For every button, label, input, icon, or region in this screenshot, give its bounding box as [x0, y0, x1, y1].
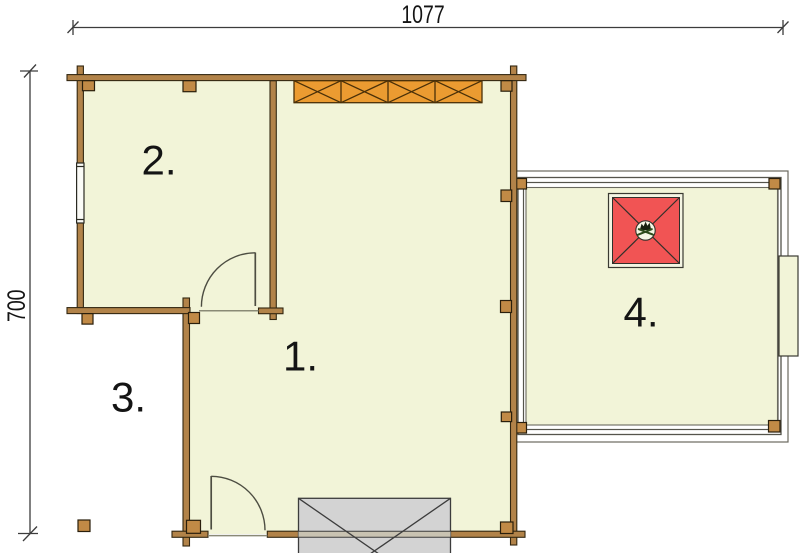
svg-text:4.: 4.	[624, 289, 659, 336]
svg-text:2.: 2.	[142, 137, 177, 184]
svg-text:1.: 1.	[283, 333, 318, 380]
svg-text:700: 700	[3, 289, 31, 322]
svg-text:3.: 3.	[111, 374, 146, 421]
svg-text:1077: 1077	[401, 1, 444, 29]
